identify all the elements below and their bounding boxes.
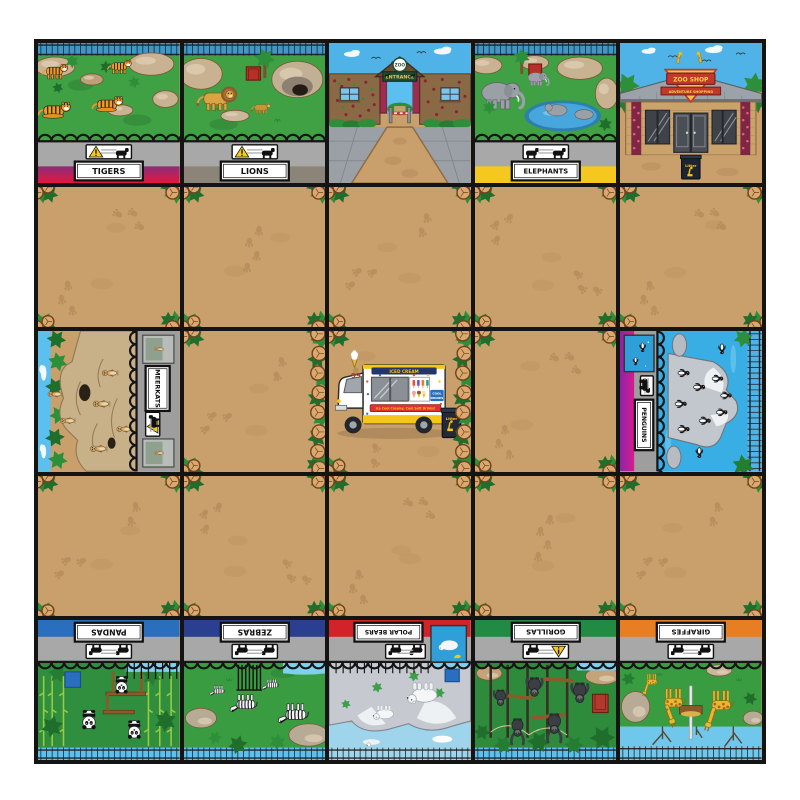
- tile-gorillas-r4c3: GORILLAS: [475, 620, 617, 760]
- shop-litter-bin: Litter: [681, 155, 702, 179]
- warning-sign: [640, 376, 654, 396]
- tile-art-path: [184, 331, 326, 471]
- van-banner: Ice Cool Creamy, Cool Soft Drinks!: [376, 407, 436, 411]
- tile-path-r1c2: [329, 187, 471, 327]
- zebras-label: ZEBRAS: [237, 627, 271, 636]
- tile-path-r1c1: [184, 187, 326, 327]
- tile-art-entrance: ENTRANCE ZOO: [329, 43, 471, 183]
- gorillas-label: GORILLAS: [526, 627, 565, 636]
- tile-path-r3c4: [620, 476, 762, 616]
- van-number: 99: [351, 371, 361, 380]
- penguin-window: [625, 336, 655, 372]
- tile-path-r1c0: [38, 187, 180, 327]
- tile-van-r2c2: 99ICED CREAMCOOLDRINKSIce Cool Creamy, C…: [329, 331, 471, 471]
- shop-banner-label: ADVENTURE SHOPPING: [669, 90, 714, 94]
- tile-art-zooshop: Litter ZOO SHOP ADVENTURE SHOPPING: [620, 43, 762, 183]
- tile-art-pandas: PANDAS: [38, 620, 180, 760]
- pandas-label: PANDAS: [91, 627, 127, 636]
- gorillas-label-sign: GORILLAS: [512, 623, 580, 642]
- tile-meerkats-r2c0: MEERKATS: [38, 331, 180, 471]
- tile-art-path: [475, 331, 617, 471]
- penguins-label: PENGUINS: [640, 408, 647, 443]
- tile-zebras-r4c1: ZEBRAS: [184, 620, 326, 760]
- van-drinks-line2: DRINKS: [431, 396, 444, 400]
- zoo-mat-page: TIGERS LIONS ENTRANCE ZOO ELEPHANTS Litt…: [0, 0, 800, 800]
- tile-path-r3c2: [329, 476, 471, 616]
- tile-path-r1c4: [620, 187, 762, 327]
- tile-art-giraffes: GIRAFFES: [620, 620, 762, 760]
- tile-path-r3c1: [184, 476, 326, 616]
- lions-label: LIONS: [240, 166, 268, 176]
- tile-art-path: [620, 187, 762, 327]
- tile-art-polarbears: POLAR BEARS: [329, 620, 471, 760]
- tile-path-r2c3: [475, 331, 617, 471]
- warning-sign: [232, 644, 277, 658]
- tile-art-path: [329, 476, 471, 616]
- zebras-label-sign: ZEBRAS: [220, 623, 288, 642]
- tigers-label-sign: TIGERS: [75, 162, 143, 181]
- tile-art-zebras: ZEBRAS: [184, 620, 326, 760]
- tile-elephants-r0c3: ELEPHANTS: [475, 43, 617, 183]
- tile-art-path: [184, 187, 326, 327]
- warning-sign: [669, 644, 714, 658]
- giraffes-label: GIRAFFES: [672, 627, 711, 636]
- tile-path-r3c3: [475, 476, 617, 616]
- elephants-label-sign: ELEPHANTS: [512, 162, 580, 181]
- pandas-label-sign: PANDAS: [75, 623, 143, 642]
- tile-art-path: [38, 187, 180, 327]
- tile-zooshop-r0c4: Litter ZOO SHOP ADVENTURE SHOPPING: [620, 43, 762, 183]
- tile-path-r1c3: [475, 187, 617, 327]
- entrance-sign: ENTRANCE: [383, 72, 417, 82]
- elephants-label: ELEPHANTS: [523, 167, 568, 175]
- lions-label-sign: LIONS: [220, 162, 288, 181]
- zoo-logo-label: ZOO: [395, 63, 406, 68]
- tile-art-gorillas: GORILLAS: [475, 620, 617, 760]
- shop-title-label: ZOO SHOP: [674, 77, 710, 83]
- warning-sign: [146, 413, 160, 437]
- tile-art-path: [620, 476, 762, 616]
- warning-sign: [386, 644, 426, 658]
- tile-art-tigers: TIGERS: [38, 43, 180, 183]
- tile-entrance-r0c2: ENTRANCE ZOO: [329, 43, 471, 183]
- tile-path-r2c1: [184, 331, 326, 471]
- tile-art-meerkats: MEERKATS: [38, 331, 180, 471]
- giraffes-label-sign: GIRAFFES: [657, 623, 725, 642]
- warning-sign: [232, 145, 277, 159]
- entrance-sign-label: ENTRANCE: [386, 74, 415, 80]
- warning-sign: [86, 145, 131, 159]
- tile-art-elephants: ELEPHANTS: [475, 43, 617, 183]
- zoo-logo: ZOO: [393, 58, 407, 71]
- tile-art-penguins: PENGUINS: [620, 331, 762, 471]
- tile-art-path: [329, 187, 471, 327]
- polarbears-label-sign: POLAR BEARS: [355, 623, 423, 642]
- tile-art-path: [475, 187, 617, 327]
- meerkats-label-sign: MEERKATS: [146, 366, 170, 411]
- tile-art-path: [38, 476, 180, 616]
- polar-window: [431, 625, 466, 661]
- polarbears-label: POLAR BEARS: [365, 628, 413, 635]
- warning-sign: [86, 644, 131, 658]
- tile-art-path: [184, 476, 326, 616]
- warning-sign: [523, 644, 568, 658]
- zoo-mat-grid: TIGERS LIONS ENTRANCE ZOO ELEPHANTS Litt…: [34, 39, 766, 764]
- tile-art-van: 99ICED CREAMCOOLDRINKSIce Cool Creamy, C…: [329, 331, 471, 471]
- tile-penguins-r2c4: PENGUINS: [620, 331, 762, 471]
- tile-lions-r0c1: LIONS: [184, 43, 326, 183]
- tile-pandas-r4c0: PANDAS: [38, 620, 180, 760]
- tile-art-path: [475, 476, 617, 616]
- meerkats-label: MEERKATS: [153, 370, 161, 409]
- tile-giraffes-r4c4: GIRAFFES: [620, 620, 762, 760]
- tile-path-r3c0: [38, 476, 180, 616]
- van-top-sign: ICED CREAM: [390, 369, 419, 374]
- tile-tigers-r0c0: TIGERS: [38, 43, 180, 183]
- tile-polarbears-r4c2: POLAR BEARS: [329, 620, 471, 760]
- ice-cream-van: 99ICED CREAMCOOLDRINKSIce Cool Creamy, C…: [336, 351, 451, 440]
- tile-art-lions: LIONS: [184, 43, 326, 183]
- warning-sign: [523, 145, 568, 159]
- tigers-label: TIGERS: [92, 166, 125, 176]
- penguins-label-sign: PENGUINS: [635, 400, 653, 450]
